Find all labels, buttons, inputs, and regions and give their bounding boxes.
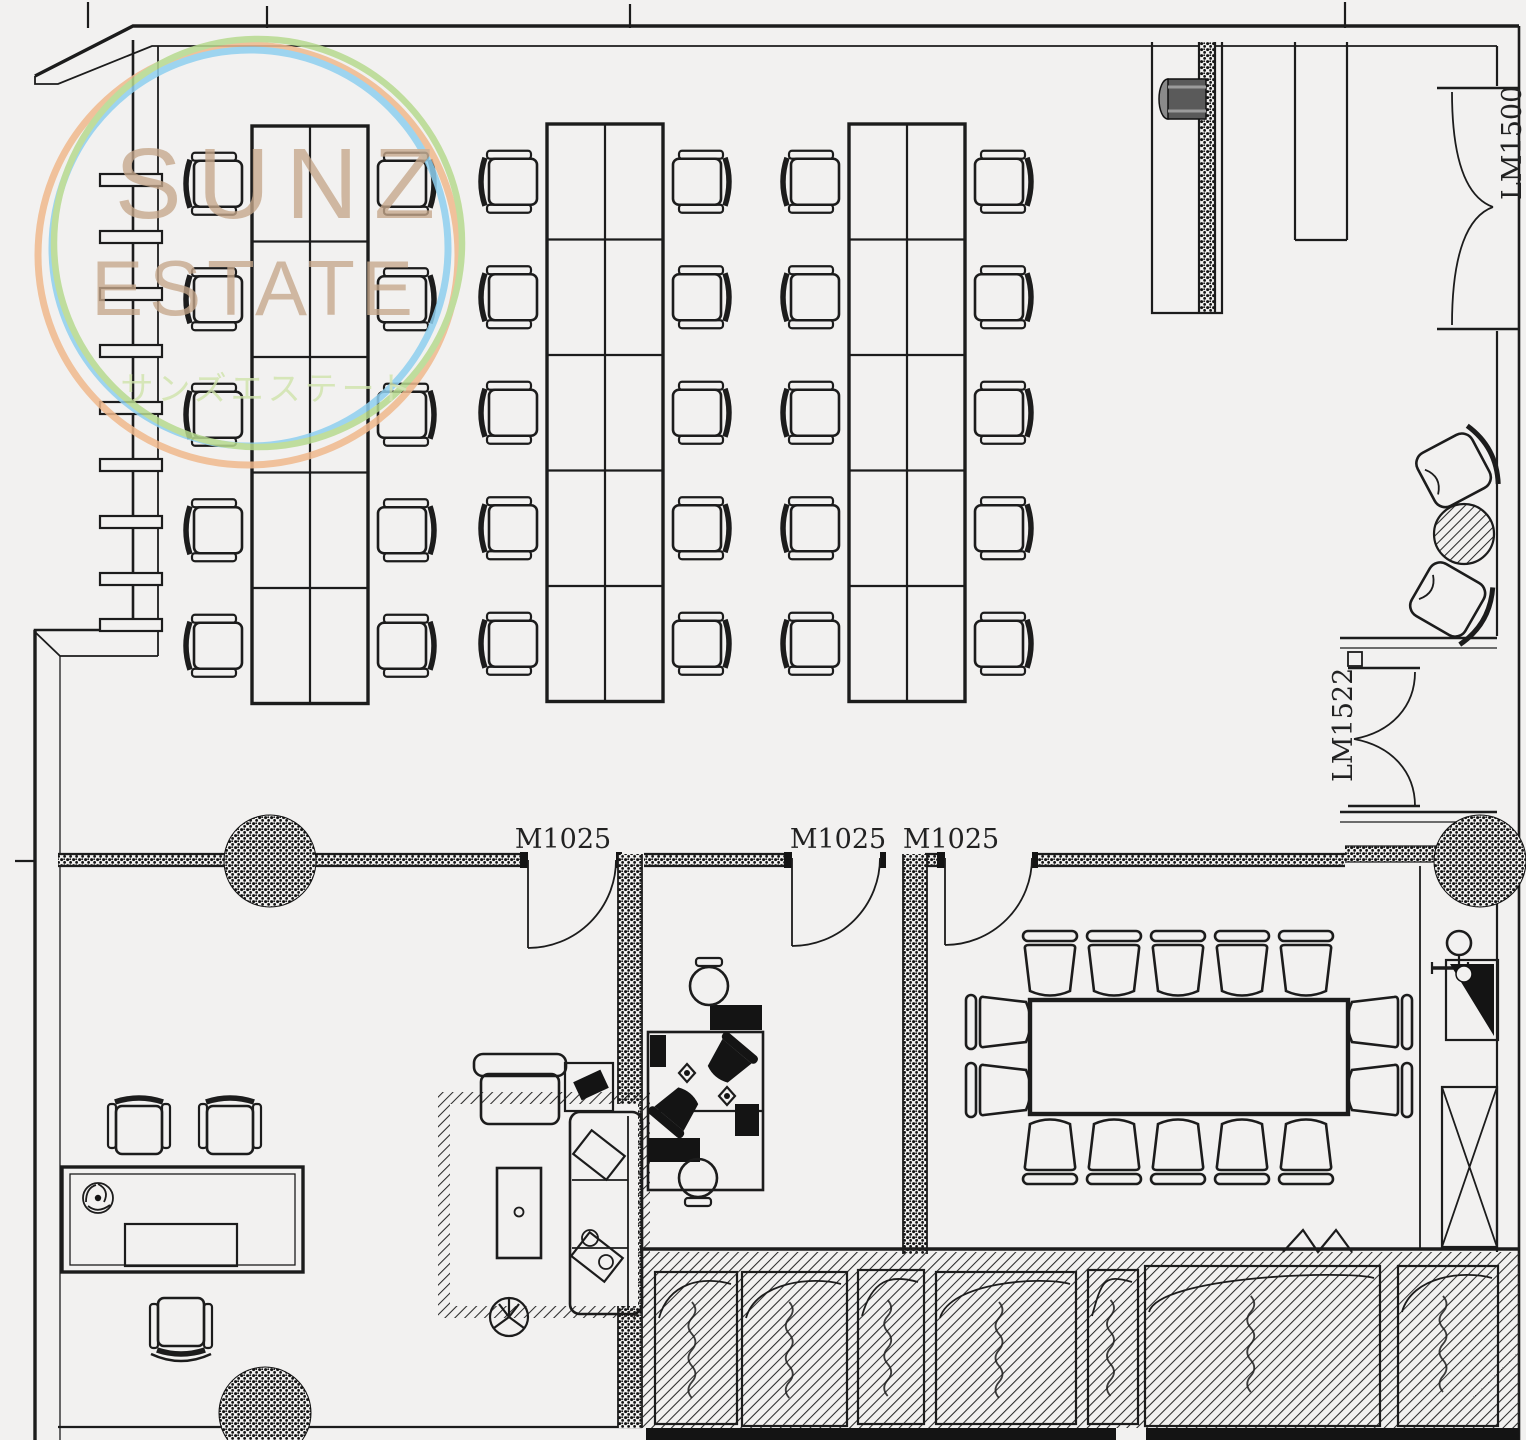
conference-chair [1023,1120,1077,1185]
task-chair [699,1030,760,1090]
guest-chair [108,1098,170,1154]
desk-chair [783,497,839,559]
interior-doors [528,858,1032,948]
desk-chair [186,499,242,561]
desk-chair [481,382,537,444]
watermark-logo: SUNZ ESTATE サンズエステート [38,39,462,465]
conference-chair [1279,931,1333,996]
lounge-chair [1411,422,1506,514]
conference-table [1030,1000,1348,1114]
desk-chair [783,151,839,213]
desk-chair [186,615,242,677]
conference-room [966,931,1412,1184]
desk-chair [975,497,1031,559]
door-label-m1025-1: M1025 [515,824,611,855]
desk-chair [975,266,1031,328]
desk-chair [481,266,537,328]
desk-fan [83,1183,113,1213]
door-label-lm1500: LM1500 [1497,86,1526,200]
desk-chair [783,613,839,675]
logo-text-japanese: サンズエステート [120,369,415,408]
conference-chair [1348,995,1413,1049]
conference-chair [1348,1063,1413,1117]
desk-chair [481,613,537,675]
floor-plan-page: LM1500 LM1522 M1025 M10 [0,0,1526,1440]
middle-office [646,958,763,1206]
desk-chair [673,497,729,559]
desk-chair [481,497,537,559]
conference-chair [1151,1120,1205,1185]
logo-text-bottom: ESTATE [91,244,419,332]
stool [679,1159,717,1206]
conference-chair [1023,931,1077,996]
desk-chair [378,615,434,677]
floor-outlet [719,1087,735,1105]
shaft [1442,1087,1497,1247]
desk-chair [783,382,839,444]
desk-chair [673,266,729,328]
door-label-m1025-3: M1025 [903,824,999,855]
wall-stubs [1152,42,1347,313]
desk-chair [783,266,839,328]
guest-chair [199,1098,261,1154]
door-label-m1025-2: M1025 [790,824,886,855]
monitors [648,1005,762,1162]
conference-chair [1087,931,1141,996]
conference-chair [1215,1120,1269,1185]
floor-outlet [679,1064,695,1082]
desk-chair [378,499,434,561]
executive-chair [150,1298,212,1354]
desk-chair [673,151,729,213]
desk-chair [673,382,729,444]
lounge-chair [1404,555,1499,648]
right-service-strip [1432,931,1498,1247]
logo-text-top: SUNZ [115,128,451,240]
duct-fitting [1159,79,1206,119]
conference-chair [1279,1120,1333,1185]
conference-chair [1151,931,1205,996]
conference-chair [966,1063,1031,1117]
hatched-service-zone [640,1230,1519,1440]
floor-plan-drawing: LM1500 LM1522 M1025 M10 [0,0,1526,1440]
desk-chair [975,613,1031,675]
desk-chair [975,382,1031,444]
lounge-area [438,1054,650,1336]
desk-chair [481,151,537,213]
executive-office [62,1098,303,1361]
stool [690,958,728,1005]
conference-chair [1215,931,1269,996]
conference-chair [966,995,1031,1049]
window-lounge [1404,422,1505,649]
door-label-lm1522: LM1522 [1328,668,1359,782]
task-chair [646,1079,707,1139]
desk-chair [673,613,729,675]
conference-chair [1087,1120,1141,1185]
side-table [1434,504,1494,564]
door-right-vestibule [1340,638,1497,822]
desk-chair [975,151,1031,213]
